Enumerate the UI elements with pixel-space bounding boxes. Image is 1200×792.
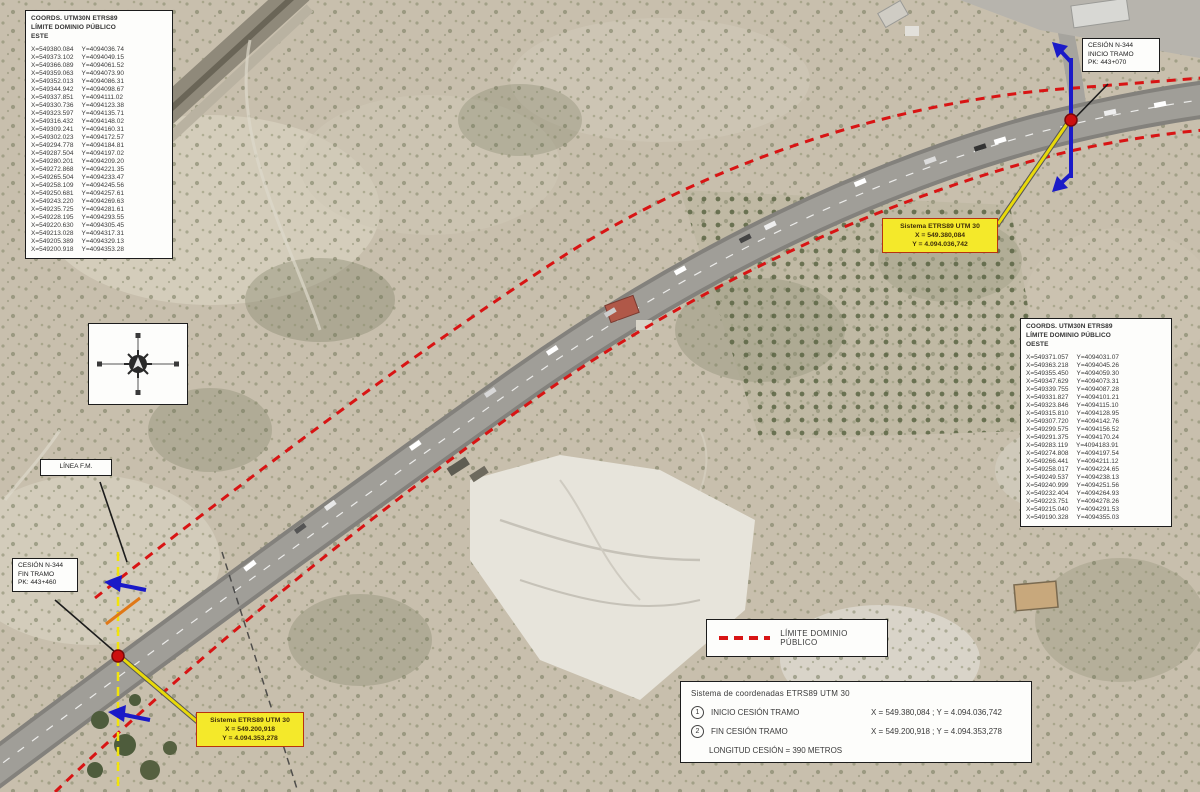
info-inicio-label: INICIO CESIÓN TRAMO [711,708,871,717]
coord-row: X=549323.597Y=4094135.71 [31,110,167,118]
coord-row: X=549258.017Y=4094224.65 [1026,466,1166,474]
coord-row: X=549232.404Y=4094264.93 [1026,490,1166,498]
coord-row: X=549190.328Y=4094355.03 [1026,514,1166,522]
coord-row: X=549316.432Y=4094148.02 [31,118,167,126]
coord-row: X=549366.089Y=4094061.52 [31,62,167,70]
coord-row: X=549240.999Y=4094251.56 [1026,482,1166,490]
cesion-fin-label: CESIÓN N-344 FIN TRAMO PK: 443+460 [12,558,78,592]
coord-row: X=549265.504Y=4094233.47 [31,174,167,182]
coord-row: X=549331.827Y=4094101.21 [1026,394,1166,402]
cesion-inicio-line2: INICIO TRAMO [1088,51,1154,60]
coords-este-title-1: COORDS. UTM30N ETRS89 [31,15,167,23]
coords-oeste-rows: X=549371.057Y=4094031.07X=549363.218Y=40… [1026,354,1166,522]
coord-row: X=549347.629Y=4094073.31 [1026,378,1166,386]
coord-row: X=549371.057Y=4094031.07 [1026,354,1166,362]
inicio-tramo-point [1065,114,1077,126]
info-row-fin: 2 FIN CESIÓN TRAMO X = 549.200,918 ; Y =… [691,725,1021,738]
legend-box: LÍMITE DOMINIO PÚBLICO [706,619,888,657]
callout-fin-coords: Sistema ETRS89 UTM 30 X = 549.200,918 Y … [196,712,304,747]
coord-row: X=549294.778Y=4094184.81 [31,142,167,150]
coords-table-oeste: COORDS. UTM30N ETRS89 LÍMITE DOMINIO PÚB… [1020,318,1172,527]
cesion-fin-line1: CESIÓN N-344 [18,562,72,571]
map-sheet: COORDS. UTM30N ETRS89 LÍMITE DOMINIO PÚB… [0,0,1200,792]
coord-row: X=549315.810Y=4094128.95 [1026,410,1166,418]
info-title: Sistema de coordenadas ETRS89 UTM 30 [691,689,1021,698]
coord-row: X=549280.201Y=4094209.20 [31,158,167,166]
callout-inicio-line2: X = 549.380,084 [889,231,991,240]
coord-row: X=549307.720Y=4094142.76 [1026,418,1166,426]
coord-row: X=549266.441Y=4094211.12 [1026,458,1166,466]
linea-fm-text: LÍNEA F.M. [46,463,106,472]
coords-este-title-3: ESTE [31,33,167,41]
coord-row: X=549355.450Y=4094059.30 [1026,370,1166,378]
coord-row: X=549380.084Y=4094036.74 [31,46,167,54]
coord-row: X=549291.375Y=4094170.24 [1026,434,1166,442]
coord-row: X=549330.736Y=4094123.38 [31,102,167,110]
coord-row: X=549337.851Y=4094111.02 [31,94,167,102]
coord-row: X=549363.218Y=4094045.26 [1026,362,1166,370]
info-row-inicio: 1 INICIO CESIÓN TRAMO X = 549.380,084 ; … [691,706,1021,719]
coord-row: X=549287.504Y=4094197.02 [31,150,167,158]
cesion-inicio-line3: PK: 443+070 [1088,59,1154,68]
info-fin-label: FIN CESIÓN TRAMO [711,727,871,736]
callout-fin-line1: Sistema ETRS89 UTM 30 [203,716,297,725]
info-fin-coords: X = 549.200,918 ; Y = 4.094.353,278 [871,727,1002,736]
coord-row: X=549274.808Y=4094197.54 [1026,450,1166,458]
coord-row: X=549359.063Y=4094073.90 [31,70,167,78]
coord-row: X=549223.751Y=4094278.26 [1026,498,1166,506]
callout-inicio-line1: Sistema ETRS89 UTM 30 [889,222,991,231]
fin-tramo-point [112,650,124,662]
coords-este-rows: X=549380.084Y=4094036.74X=549373.102Y=40… [31,46,167,254]
coords-oeste-title-3: OESTE [1026,341,1166,349]
callout-fin-line3: Y = 4.094.353,278 [203,734,297,743]
coord-row: X=549272.868Y=4094221.35 [31,166,167,174]
guardrail-orange-segment [106,598,140,624]
coord-row: X=549249.537Y=4094238.13 [1026,474,1166,482]
cesion-inicio-label: CESIÓN N-344 INICIO TRAMO PK: 443+070 [1082,38,1160,72]
compass-box [88,323,188,405]
coords-table-este: COORDS. UTM30N ETRS89 LÍMITE DOMINIO PÚB… [25,10,173,259]
coord-row: X=549213.028Y=4094317.31 [31,230,167,238]
coord-row: X=549352.013Y=4094086.31 [31,78,167,86]
cesion-info-box: Sistema de coordenadas ETRS89 UTM 30 1 I… [680,681,1032,763]
coord-row: X=549323.846Y=4094115.10 [1026,402,1166,410]
coord-row: X=549228.195Y=4094293.55 [31,214,167,222]
coord-row: X=549302.023Y=4094172.57 [31,134,167,142]
coord-row: X=549200.918Y=4094353.28 [31,246,167,254]
coord-row: X=549339.755Y=4094087.28 [1026,386,1166,394]
info-inicio-coords: X = 549.380,084 ; Y = 4.094.036,742 [871,708,1002,717]
circled-2-icon: 2 [691,725,704,738]
coord-row: X=549205.389Y=4094329.13 [31,238,167,246]
coord-row: X=549258.109Y=4094245.56 [31,182,167,190]
yellow-leader-lines [122,124,1067,724]
legend-red-dash-icon [719,636,770,640]
coord-row: X=549373.102Y=4094049.15 [31,54,167,62]
info-length: LONGITUD CESIÓN = 390 METROS [709,746,1021,755]
coord-row: X=549299.575Y=4094156.52 [1026,426,1166,434]
coord-row: X=549250.681Y=4094257.61 [31,190,167,198]
callout-fin-line2: X = 549.200,918 [203,725,297,734]
linea-fm-label: LÍNEA F.M. [40,459,112,476]
coord-row: X=549220.630Y=4094305.45 [31,222,167,230]
callout-inicio-coords: Sistema ETRS89 UTM 30 X = 549.380,084 Y … [882,218,998,253]
legend-label: LÍMITE DOMINIO PÚBLICO [780,629,875,647]
callout-inicio-line3: Y = 4.094.036,742 [889,240,991,249]
coord-row: X=549215.040Y=4094291.53 [1026,506,1166,514]
circled-1-icon: 1 [691,706,704,719]
coords-oeste-title-1: COORDS. UTM30N ETRS89 [1026,323,1166,331]
coords-este-title-2: LÍMITE DOMINIO PÚBLICO [31,24,167,32]
coord-row: X=549283.119Y=4094183.91 [1026,442,1166,450]
cesion-fin-line2: FIN TRAMO [18,571,72,580]
coord-row: X=549344.942Y=4094098.67 [31,86,167,94]
coord-row: X=549235.725Y=4094281.61 [31,206,167,214]
cesion-inicio-line1: CESIÓN N-344 [1088,42,1154,51]
coord-row: X=549243.220Y=4094269.63 [31,198,167,206]
compass-rose-icon [93,329,183,399]
coord-row: X=549309.241Y=4094160.31 [31,126,167,134]
coords-oeste-title-2: LÍMITE DOMINIO PÚBLICO [1026,332,1166,340]
cesion-fin-line3: PK: 443+460 [18,579,72,588]
